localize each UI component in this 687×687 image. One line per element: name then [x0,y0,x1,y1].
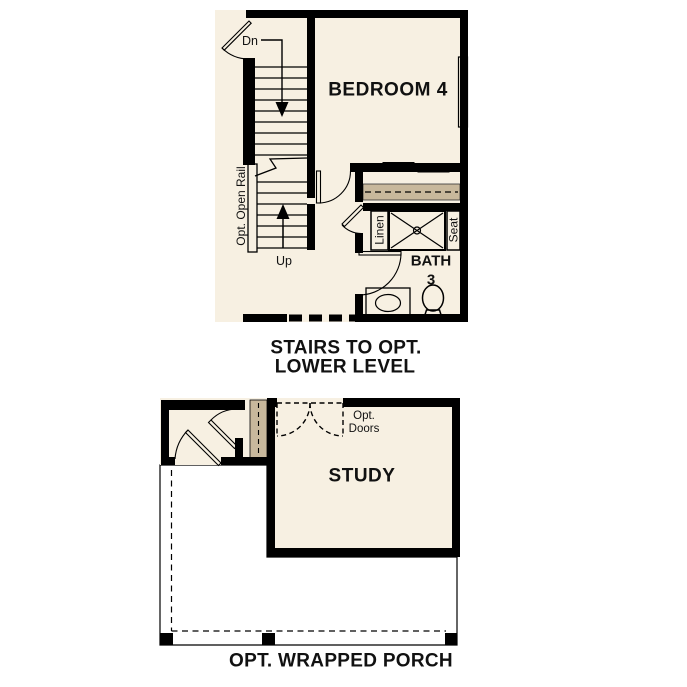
lower-plan: STUDY Opt. Doors OPT. WRAPPED PORCH [160,398,460,672]
bath-label: BATH [411,253,452,270]
stair-up-label: Up [276,254,292,268]
stair-dn-label: Dn [242,34,258,48]
seat-label: Seat [447,217,461,242]
closet [363,184,460,200]
entry-study-chase [250,400,267,462]
bath-number-label: 3 [427,272,435,289]
opt-doors-label-line2: Doors [349,423,380,435]
lower-floor-area [160,398,460,557]
linen-label: Linen [373,215,387,244]
porch-caption: OPT. WRAPPED PORCH [229,651,453,672]
study-label: STUDY [329,466,396,487]
stairs-caption-line2: LOWER LEVEL [275,357,416,378]
opt-doors-label-line1: Opt. [353,410,375,422]
opt-open-rail-label: Opt. Open Rail [234,166,248,245]
floorplan-page: BEDROOM 4 Dn Up Opt. Open Rail Linen Sea… [0,0,687,687]
stairs-caption-line1: STAIRS TO OPT. [270,338,421,359]
floorplan-svg: BEDROOM 4 Dn Up Opt. Open Rail Linen Sea… [0,0,687,687]
porch-post [160,633,173,645]
porch-post [445,633,457,645]
upper-plan: BEDROOM 4 Dn Up Opt. Open Rail Linen Sea… [215,10,468,378]
porch-post [262,633,275,645]
bedroom4-label: BEDROOM 4 [328,80,448,101]
